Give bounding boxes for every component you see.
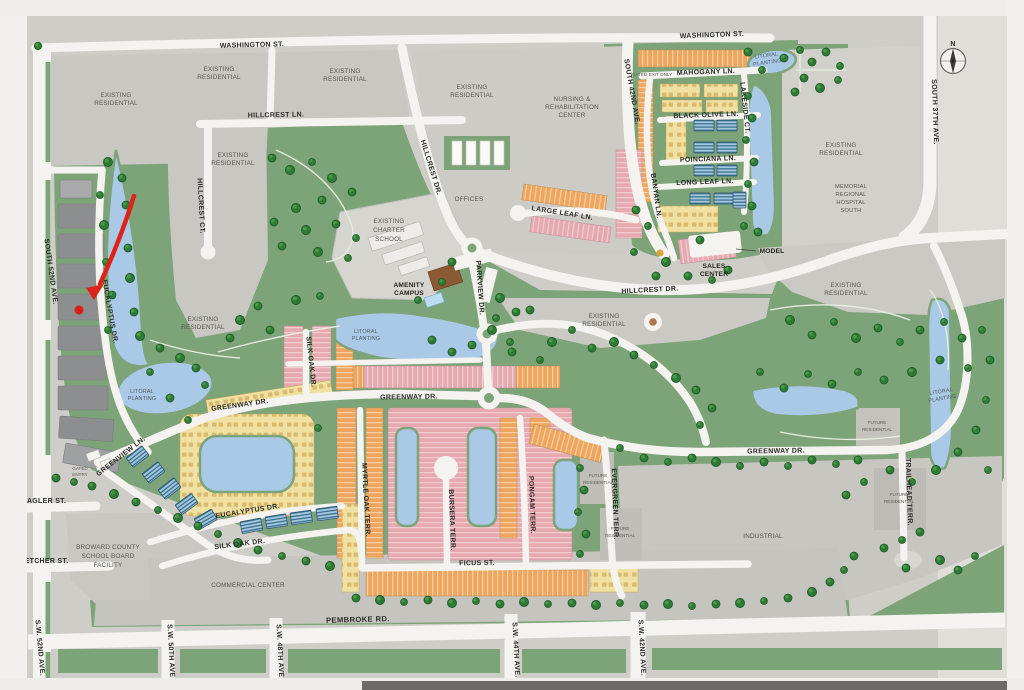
- tree-icon: [822, 48, 830, 56]
- svg-text:RESIDENTIAL: RESIDENTIAL: [583, 480, 614, 485]
- svg-text:REHABILITATION: REHABILITATION: [545, 104, 599, 111]
- tree-icon: [104, 158, 113, 167]
- tree-icon: [954, 566, 962, 574]
- tree-icon: [630, 351, 638, 359]
- tree-icon: [577, 551, 584, 558]
- tree-icon: [800, 74, 808, 82]
- tree-icon: [748, 202, 756, 210]
- tree-icon: [448, 348, 456, 356]
- label-ficus-st: FICUS ST.: [459, 560, 495, 568]
- tree-icon: [805, 371, 812, 378]
- label-gated-entry: GATED ENTRY: [72, 466, 88, 477]
- svg-text:RESIDENTIAL: RESIDENTIAL: [211, 160, 255, 167]
- tree-icon: [401, 599, 408, 606]
- tree-icon: [617, 600, 624, 607]
- tree-icon: [100, 221, 109, 230]
- tree-icon: [941, 319, 948, 326]
- svg-text:ENTRY: ENTRY: [72, 472, 88, 477]
- tree-icon: [568, 599, 576, 607]
- tree-icon: [376, 596, 385, 605]
- tree-icon: [954, 448, 962, 456]
- label-pembroke-rd: PEMBROKE RD.: [326, 614, 390, 625]
- tree-icon: [696, 236, 704, 244]
- tree-icon: [254, 546, 262, 554]
- svg-text:RESIDENTIAL: RESIDENTIAL: [197, 74, 241, 81]
- svg-text:BROWARD COUNTY: BROWARD COUNTY: [76, 544, 140, 551]
- tree-icon: [286, 166, 295, 175]
- label-hillcrest-ln: HILLCREST LN.: [248, 112, 305, 120]
- label-industrial: INDUSTRIAL: [743, 533, 783, 540]
- tree-icon: [958, 334, 966, 342]
- road-ficus-st: [362, 564, 748, 568]
- tree-icon: [348, 188, 356, 196]
- tree-icon: [582, 530, 590, 538]
- townhome-building: [694, 142, 714, 153]
- tree-icon: [345, 255, 352, 262]
- label-existing-residential-ct: EXISTING RESIDENTIAL: [211, 152, 255, 167]
- tree-icon: [826, 578, 834, 586]
- label-existing-residential-east: EXISTING RESIDENTIAL: [824, 282, 868, 297]
- tree-icon: [493, 315, 500, 322]
- label-litoral-planting-central: LITORAL PLANTING: [352, 329, 381, 342]
- tree-icon: [314, 248, 323, 257]
- tree-icon: [708, 404, 716, 412]
- townhome-building: [717, 120, 737, 131]
- tree-icon: [979, 327, 986, 334]
- townhome-building: [694, 120, 714, 131]
- tree-icon: [575, 509, 582, 516]
- tree-icon: [662, 258, 671, 267]
- tree-icon: [126, 274, 135, 283]
- label-litoral-planting-west: LITORAL PLANTING: [128, 389, 157, 402]
- tree-icon: [645, 223, 652, 230]
- svg-text:RESIDENTIAL: RESIDENTIAL: [181, 324, 225, 331]
- tree-icon: [741, 223, 748, 230]
- svg-text:LITORAL: LITORAL: [354, 329, 378, 335]
- tree-icon: [874, 324, 882, 332]
- tree-icon: [880, 376, 888, 384]
- tree-icon: [808, 588, 817, 597]
- tree-icon: [833, 461, 840, 468]
- label-existing-residential-lakeside: EXISTING RESIDENTIAL: [819, 142, 863, 157]
- tree-icon: [236, 316, 245, 325]
- svg-text:SCHOOL: SCHOOL: [375, 236, 403, 243]
- tree-icon: [854, 456, 862, 464]
- tree-icon: [118, 174, 126, 182]
- tree-icon: [88, 482, 96, 490]
- townhome-building: [694, 165, 714, 176]
- photo-bottom-edge: [362, 681, 1007, 690]
- tree-icon: [985, 467, 992, 474]
- svg-text:PLANTING: PLANTING: [352, 336, 381, 342]
- label-greenway-dr-center: GREENWAY DR.: [380, 393, 438, 401]
- tree-icon: [473, 598, 480, 605]
- tree-icon: [672, 374, 681, 383]
- tree-icon: [592, 601, 601, 610]
- tree-icon: [897, 339, 904, 346]
- label-amenity-campus: AMENITY CAMPUS: [393, 282, 424, 297]
- svg-text:RESIDENTIAL: RESIDENTIAL: [323, 76, 367, 83]
- tree-icon: [202, 382, 209, 389]
- road-bursera-terr: [446, 480, 447, 565]
- tree-icon: [192, 364, 200, 372]
- tree-icon: [588, 344, 596, 352]
- tree-icon: [577, 465, 584, 472]
- svg-text:FUTURE: FUTURE: [589, 473, 608, 478]
- tree-icon: [828, 380, 836, 388]
- svg-text:SCHOOL BOARD: SCHOOL BOARD: [82, 553, 135, 560]
- tree-icon: [861, 479, 868, 486]
- tree-icon: [880, 544, 888, 552]
- tree-icon: [850, 552, 858, 560]
- label-existing-residential-nw: EXISTING RESIDENTIAL: [94, 92, 138, 107]
- tree-icon: [352, 594, 360, 602]
- tree-icon: [786, 316, 795, 325]
- tree-icon: [855, 369, 862, 376]
- tree-icon: [692, 386, 700, 394]
- pongam-east-lake: [554, 460, 578, 530]
- tree-icon: [130, 308, 138, 316]
- tree-icon: [797, 47, 804, 54]
- tree-icon: [697, 422, 704, 429]
- tree-icon: [750, 158, 758, 166]
- svg-text:GATED: GATED: [72, 466, 88, 471]
- tree-icon: [328, 174, 337, 183]
- tree-icon: [548, 338, 557, 347]
- svg-text:MEMORIAL: MEMORIAL: [835, 184, 867, 190]
- tree-icon: [610, 338, 619, 347]
- tree-icon: [580, 486, 588, 494]
- svg-text:CHARTER: CHARTER: [373, 227, 405, 234]
- svg-text:RESIDENTIAL: RESIDENTIAL: [862, 427, 893, 432]
- tree-icon: [215, 531, 222, 538]
- tree-icon: [932, 466, 941, 475]
- tree-icon: [745, 181, 752, 188]
- label-charter-school: EXISTING CHARTER SCHOOL: [373, 218, 405, 243]
- tree-icon: [816, 84, 825, 93]
- svg-text:RESIDENTIAL: RESIDENTIAL: [824, 290, 868, 297]
- svg-text:FUTURE: FUTURE: [890, 492, 909, 497]
- svg-text:HOSPITAL: HOSPITAL: [836, 200, 865, 206]
- svg-text:EXISTING: EXISTING: [589, 313, 620, 320]
- sales-center-building: [657, 250, 664, 257]
- road-parkview-dr-south: [486, 344, 488, 386]
- svg-text:EXISTING: EXISTING: [188, 316, 219, 323]
- tree-icon: [448, 599, 457, 608]
- svg-text:NURSING &: NURSING &: [554, 96, 591, 103]
- tree-icon: [71, 479, 78, 486]
- tree-icon: [326, 562, 335, 571]
- tree-icon: [902, 564, 910, 572]
- tree-icon: [132, 498, 140, 506]
- tree-icon: [808, 456, 816, 464]
- tree-icon: [468, 341, 476, 349]
- tree-icon: [353, 235, 360, 242]
- tree-icon: [780, 384, 788, 392]
- svg-text:CENTER: CENTER: [558, 112, 585, 119]
- svg-text:EXISTING: EXISTING: [374, 218, 405, 225]
- tree-icon: [835, 77, 842, 84]
- master-plan-map: WASHINGTON ST. WASHINGTON ST. HILLCREST …: [0, 0, 1024, 690]
- svg-text:RESIDENTIAL: RESIDENTIAL: [450, 92, 494, 99]
- tree-icon: [309, 159, 316, 166]
- townhome-building: [717, 142, 737, 153]
- pink-block-lake-west: [396, 428, 418, 526]
- pink-block-lake-east: [468, 428, 496, 526]
- svg-text:RESIDENTIAL: RESIDENTIAL: [605, 533, 636, 538]
- svg-text:EXISTING: EXISTING: [101, 92, 132, 99]
- tree-icon: [886, 466, 894, 474]
- tree-icon: [317, 293, 324, 300]
- tree-icon: [279, 553, 286, 560]
- tree-icon: [266, 326, 274, 334]
- tree-icon: [831, 319, 838, 326]
- svg-text:RESIDENTIAL: RESIDENTIAL: [94, 100, 138, 107]
- tree-icon: [292, 204, 301, 213]
- tree-icon: [664, 600, 673, 609]
- tree-icon: [689, 603, 696, 610]
- tree-icon: [736, 599, 745, 608]
- svg-text:AMENITY: AMENITY: [393, 282, 424, 289]
- svg-text:RESIDENTIAL: RESIDENTIAL: [582, 321, 626, 328]
- label-existing-residential-n3: EXISTING RESIDENTIAL: [450, 84, 494, 99]
- east-lake-horizontal: [752, 385, 859, 416]
- tree-icon: [507, 339, 514, 346]
- label-commercial-center: COMMERCIAL CENTER: [211, 582, 285, 589]
- tree-icon: [166, 394, 174, 402]
- label-offices: OFFICES: [455, 196, 484, 203]
- tree-icon: [986, 356, 994, 364]
- tree-icon: [488, 326, 497, 335]
- svg-text:PLANTING: PLANTING: [128, 396, 157, 402]
- svg-text:EXISTING: EXISTING: [330, 68, 361, 75]
- svg-text:EXISTING: EXISTING: [218, 152, 249, 159]
- tree-icon: [744, 48, 752, 56]
- tree-icon: [808, 331, 816, 339]
- tree-icon: [185, 417, 192, 424]
- road-flagler-st: [28, 506, 96, 508]
- tree-icon: [712, 600, 720, 608]
- svg-text:FACILITY: FACILITY: [94, 562, 123, 569]
- label-existing-residential-mid-left: EXISTING RESIDENTIAL: [181, 316, 225, 331]
- label-existing-residential-central: EXISTING RESIDENTIAL: [582, 313, 626, 328]
- site-plan-photo: WASHINGTON ST. WASHINGTON ST. HILLCREST …: [0, 0, 1024, 690]
- tree-icon: [791, 88, 799, 96]
- svg-text:SALES: SALES: [703, 263, 726, 270]
- tree-icon: [194, 522, 202, 530]
- tree-icon: [124, 244, 132, 252]
- tree-icon: [496, 600, 504, 608]
- tree-icon: [147, 369, 154, 376]
- svg-text:CENTER: CENTER: [700, 271, 728, 278]
- townhome-building: [717, 165, 737, 176]
- tree-icon: [684, 272, 692, 280]
- townhome-building: [690, 193, 710, 204]
- tree-icon: [852, 334, 861, 343]
- tree-icon: [270, 218, 278, 226]
- tree-icon: [841, 567, 848, 574]
- tree-icon: [415, 297, 422, 304]
- svg-text:LITORAL: LITORAL: [130, 389, 154, 395]
- tree-icon: [520, 598, 529, 607]
- townhome-building: [714, 193, 734, 204]
- tree-icon: [760, 458, 768, 466]
- tree-icon: [315, 425, 322, 432]
- tree-icon: [785, 463, 792, 470]
- tree-icon: [439, 279, 446, 286]
- tree-icon: [155, 507, 162, 514]
- tree-icon: [278, 242, 286, 250]
- townhome-building: [290, 510, 312, 525]
- svg-text:RESIDENTIAL: RESIDENTIAL: [884, 499, 915, 504]
- tree-icon: [254, 302, 262, 310]
- tree-icon: [972, 426, 980, 434]
- tree-icon: [761, 598, 768, 605]
- label-greenway-dr-east: GREENWAY DR.: [747, 447, 805, 455]
- tree-icon: [34, 42, 42, 50]
- svg-text:EXISTING: EXISTING: [204, 66, 235, 73]
- tree-icon: [908, 368, 917, 377]
- tree-icon: [318, 196, 326, 204]
- svg-text:FUTURE: FUTURE: [611, 526, 630, 531]
- tree-icon: [743, 137, 750, 144]
- highlight-dot: [75, 306, 84, 315]
- label-sales-center: SALES CENTER: [700, 263, 728, 278]
- compass-n-label: N: [950, 41, 955, 48]
- tree-icon: [268, 154, 276, 162]
- tree-icon: [174, 514, 183, 523]
- tree-icon: [448, 258, 456, 266]
- tree-icon: [972, 553, 979, 560]
- svg-text:CAMPUS: CAMPUS: [394, 290, 424, 297]
- ring-lake: [200, 436, 294, 492]
- tree-icon: [508, 348, 516, 356]
- tree-icon: [652, 272, 660, 280]
- tree-icon: [292, 296, 301, 305]
- tree-icon: [916, 528, 924, 536]
- tree-icon: [537, 357, 544, 364]
- tree-icon: [640, 601, 648, 609]
- tree-icon: [916, 326, 924, 334]
- svg-text:REGIONAL: REGIONAL: [836, 192, 867, 198]
- tree-icon: [332, 220, 340, 228]
- tree-icon: [712, 458, 721, 467]
- tree-icon: [156, 344, 164, 352]
- label-model: MODEL: [760, 248, 785, 255]
- tree-icon: [424, 596, 432, 604]
- tree-icon: [837, 63, 844, 70]
- tree-icon: [512, 308, 520, 316]
- svg-text:SOUTH: SOUTH: [841, 208, 862, 214]
- tree-icon: [936, 356, 944, 364]
- tree-icon: [688, 454, 696, 462]
- tree-icon: [545, 601, 552, 608]
- tree-icon: [651, 362, 658, 369]
- tree-icon: [302, 226, 311, 235]
- tree-icon: [899, 537, 906, 544]
- tree-icon: [176, 354, 185, 363]
- tree-icon: [302, 557, 310, 565]
- townhome-building: [316, 506, 338, 521]
- svg-text:EXISTING: EXISTING: [831, 282, 862, 289]
- svg-text:EXISTING: EXISTING: [457, 84, 488, 91]
- east-lake-vertical: [928, 299, 952, 469]
- tree-icon: [784, 594, 792, 602]
- tree-icon: [52, 474, 60, 482]
- tree-icon: [665, 459, 672, 466]
- tree-icon: [631, 249, 638, 256]
- tree-icon: [496, 294, 505, 303]
- tree-icon: [428, 336, 436, 344]
- tree-icon: [226, 334, 234, 342]
- tree-icon: [965, 365, 972, 372]
- tree-icon: [569, 327, 576, 334]
- tree-icon: [136, 332, 145, 341]
- tree-icon: [808, 58, 816, 66]
- tree-icon: [97, 192, 104, 199]
- tree-icon: [617, 445, 624, 452]
- label-gated-exit-only: GATED EXIT ONLY: [632, 72, 672, 77]
- tree-icon: [842, 491, 850, 499]
- tree-icon: [737, 463, 744, 470]
- svg-text:EXISTING: EXISTING: [826, 142, 857, 149]
- tree-icon: [757, 369, 764, 376]
- townhome-building: [733, 192, 746, 208]
- tree-icon: [936, 556, 945, 565]
- tree-icon: [983, 397, 990, 404]
- tree-icon: [526, 306, 534, 314]
- tree-icon: [632, 206, 640, 214]
- svg-text:FUTURE: FUTURE: [868, 420, 887, 425]
- tree-icon: [640, 454, 648, 462]
- tree-icon: [754, 228, 762, 236]
- tree-icon: [759, 67, 766, 74]
- label-existing-residential-n1: EXISTING RESIDENTIAL: [197, 66, 241, 81]
- svg-text:RESIDENTIAL: RESIDENTIAL: [819, 150, 863, 157]
- tree-icon: [110, 490, 119, 499]
- label-existing-residential-n2: EXISTING RESIDENTIAL: [323, 68, 367, 83]
